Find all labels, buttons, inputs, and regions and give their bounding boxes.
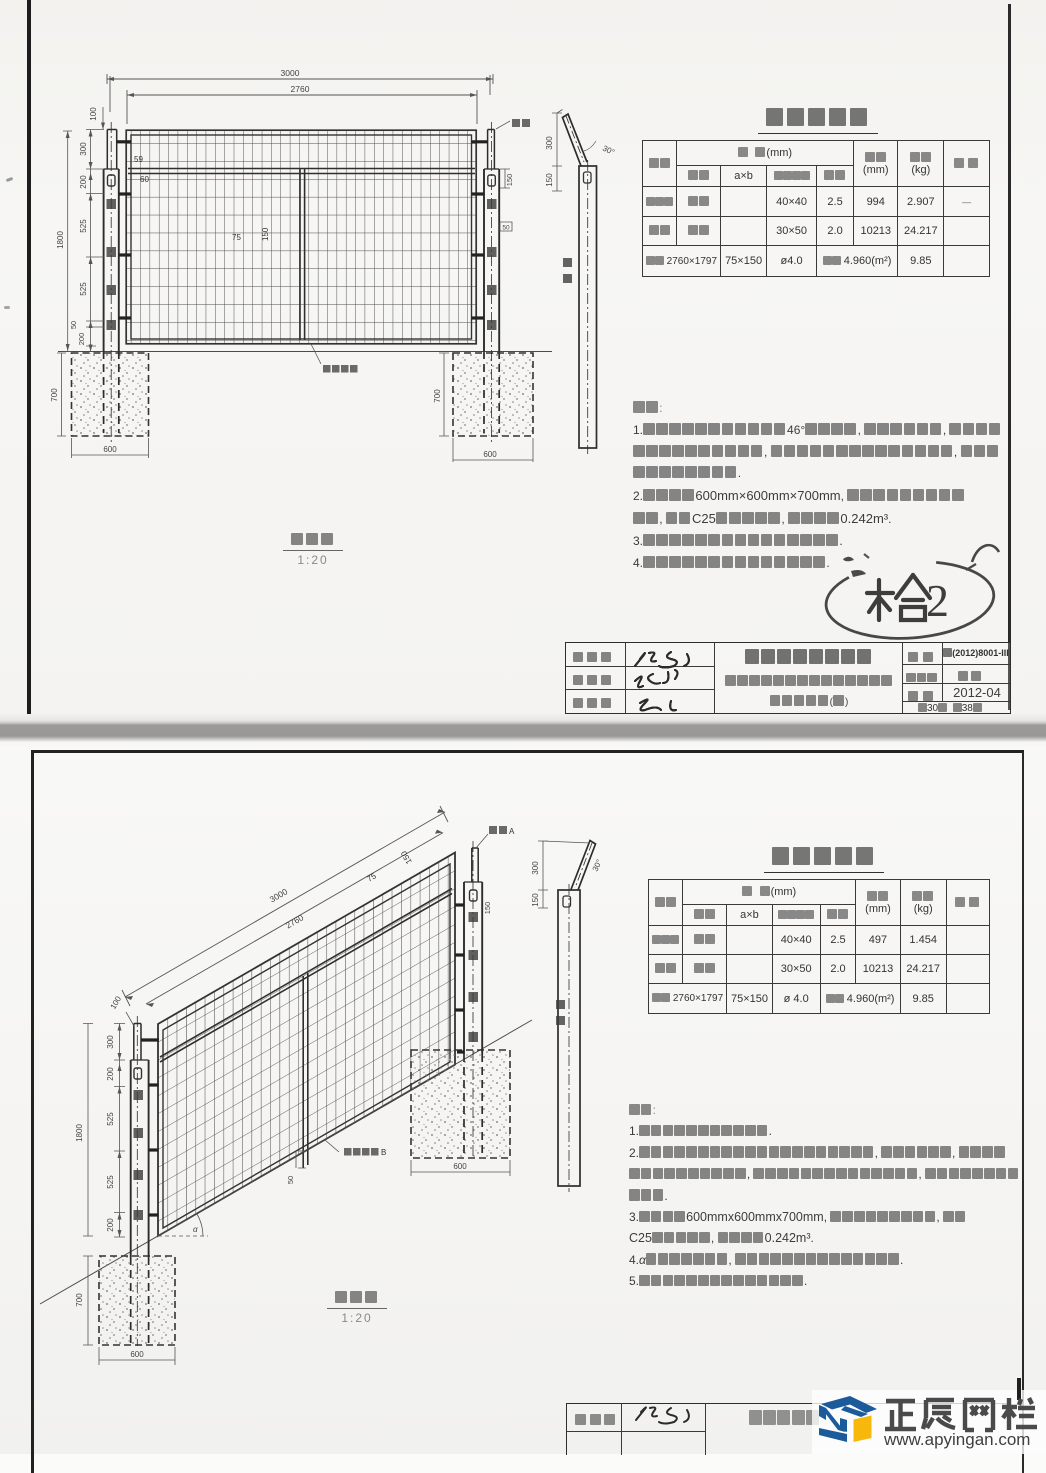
svg-text:525: 525 — [106, 1112, 115, 1126]
svg-text:2760: 2760 — [284, 912, 306, 930]
svg-text:2: 2 — [926, 575, 949, 626]
svg-text:600: 600 — [453, 1162, 467, 1171]
svg-text:700: 700 — [75, 1293, 84, 1307]
svg-text:B: B — [381, 1148, 386, 1157]
svg-text:50: 50 — [286, 1176, 295, 1184]
svg-text:300: 300 — [545, 136, 554, 150]
svg-text:A: A — [509, 827, 515, 836]
svg-text:3000: 3000 — [281, 68, 300, 78]
svg-text:700: 700 — [433, 389, 442, 403]
svg-text:150: 150 — [531, 893, 540, 907]
svg-text:50: 50 — [69, 321, 78, 329]
svg-text:150: 150 — [505, 174, 514, 187]
svg-text:60: 60 — [140, 175, 149, 184]
svg-text:1800: 1800 — [56, 231, 65, 249]
svg-text:3000: 3000 — [268, 886, 290, 904]
svg-text:700: 700 — [50, 388, 59, 402]
svg-text:300: 300 — [531, 861, 540, 875]
svg-text:α: α — [193, 1225, 198, 1234]
svg-text:150: 150 — [399, 849, 414, 866]
svg-text:150: 150 — [483, 902, 492, 915]
svg-text:100: 100 — [89, 107, 98, 121]
svg-text:30°: 30° — [591, 858, 604, 873]
svg-text:75: 75 — [366, 871, 379, 884]
svg-text:200: 200 — [106, 1218, 115, 1232]
svg-text:200: 200 — [77, 333, 86, 346]
svg-text:300: 300 — [106, 1035, 115, 1049]
svg-text:75: 75 — [232, 233, 241, 242]
svg-text:150: 150 — [261, 227, 270, 241]
svg-text:150: 150 — [545, 173, 554, 187]
svg-text:600: 600 — [130, 1350, 144, 1359]
svg-text:300: 300 — [79, 142, 88, 156]
svg-text:100: 100 — [109, 994, 124, 1011]
svg-text:50: 50 — [502, 225, 510, 232]
svg-text:2760: 2760 — [291, 84, 310, 94]
svg-text:600: 600 — [103, 445, 117, 454]
svg-text:525: 525 — [79, 219, 88, 233]
svg-text:59: 59 — [134, 155, 143, 164]
svg-text:1800: 1800 — [75, 1124, 84, 1142]
svg-text:525: 525 — [79, 282, 88, 296]
svg-text:200: 200 — [79, 175, 88, 189]
svg-text:200: 200 — [106, 1067, 115, 1081]
svg-text:30°: 30° — [601, 144, 616, 157]
svg-text:600: 600 — [483, 450, 497, 459]
svg-text:525: 525 — [106, 1175, 115, 1189]
